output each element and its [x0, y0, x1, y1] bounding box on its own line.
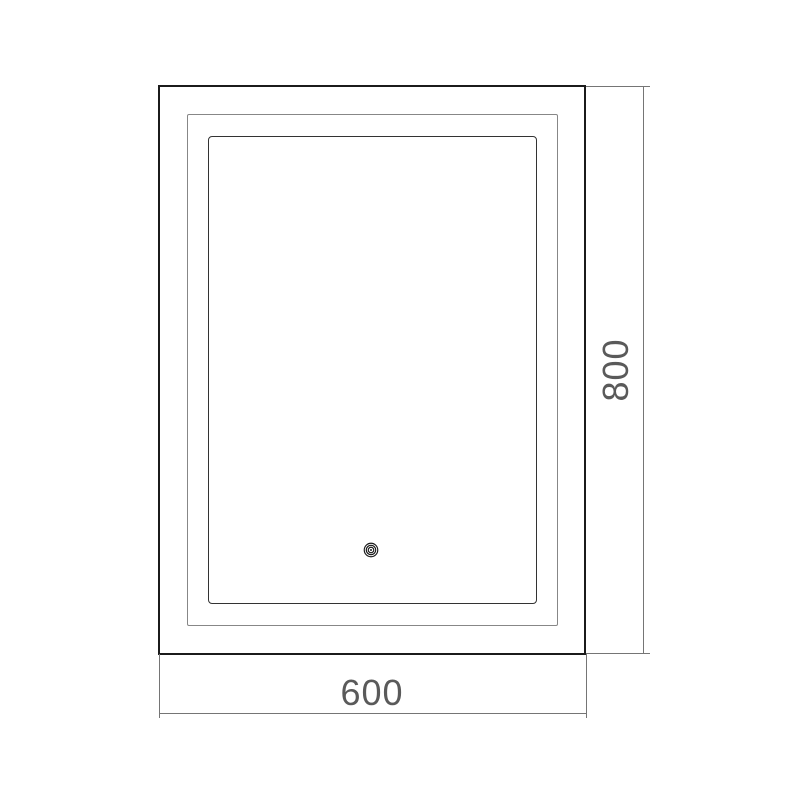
touch-sensor-icon — [363, 542, 379, 558]
width-dimension-label: 600 — [312, 673, 432, 713]
mirror-lighted-area — [208, 136, 537, 604]
mirror-technical-drawing: 800 600 — [0, 0, 800, 800]
width-dimension-line — [159, 713, 587, 714]
extension-line-top-right — [586, 86, 650, 87]
extension-line-bottom-right-vertical — [586, 654, 587, 718]
height-dimension-line — [643, 86, 644, 654]
height-dimension-label: 800 — [596, 310, 636, 430]
extension-line-bottom-left — [159, 654, 160, 718]
extension-line-bottom-right — [586, 653, 650, 654]
